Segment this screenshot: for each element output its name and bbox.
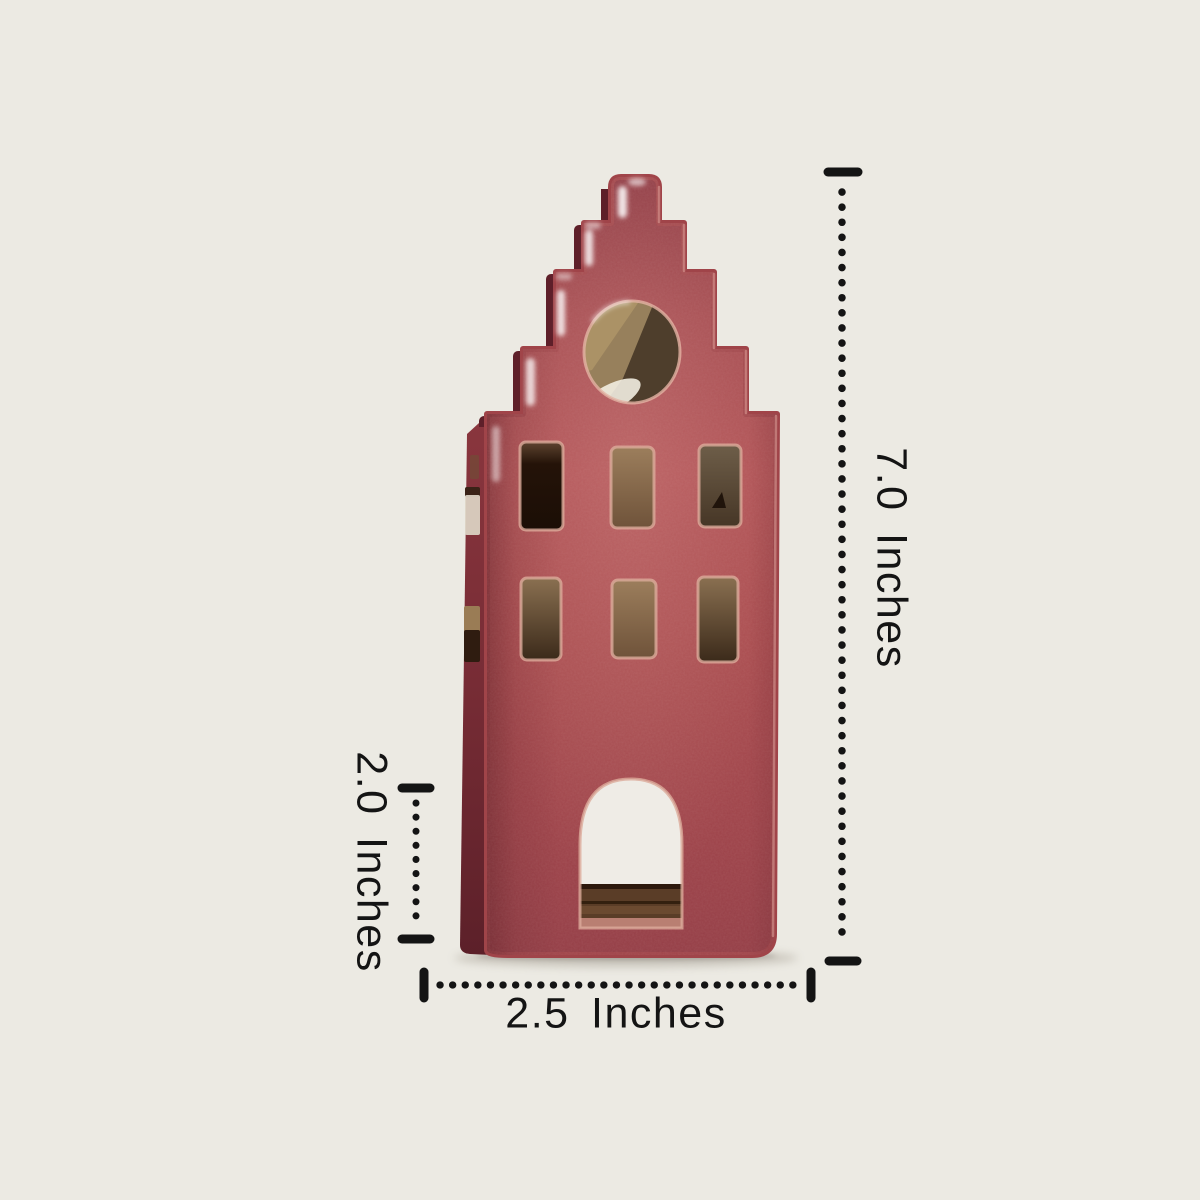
tealight-base xyxy=(576,884,686,928)
window xyxy=(612,580,656,658)
lower-section-dimension-line xyxy=(402,788,430,939)
height-dimension-line xyxy=(828,172,858,961)
arched-doorway xyxy=(576,779,686,928)
height-dimension-label: 7.0 Inches xyxy=(867,447,916,668)
window xyxy=(698,577,738,662)
window xyxy=(611,447,654,528)
product-photo-scene: 7.0 Inches 2.0 Inches 2.5 Inches xyxy=(0,0,1200,1200)
window xyxy=(699,445,741,527)
house-front-face xyxy=(487,177,777,955)
lower-section-dimension-label: 2.0 Inches xyxy=(347,751,396,972)
window xyxy=(520,442,563,530)
upper-window-row xyxy=(520,442,741,530)
width-dimension-label: 2.5 Inches xyxy=(505,990,726,1039)
lower-window-row xyxy=(521,577,738,662)
window xyxy=(521,578,561,660)
